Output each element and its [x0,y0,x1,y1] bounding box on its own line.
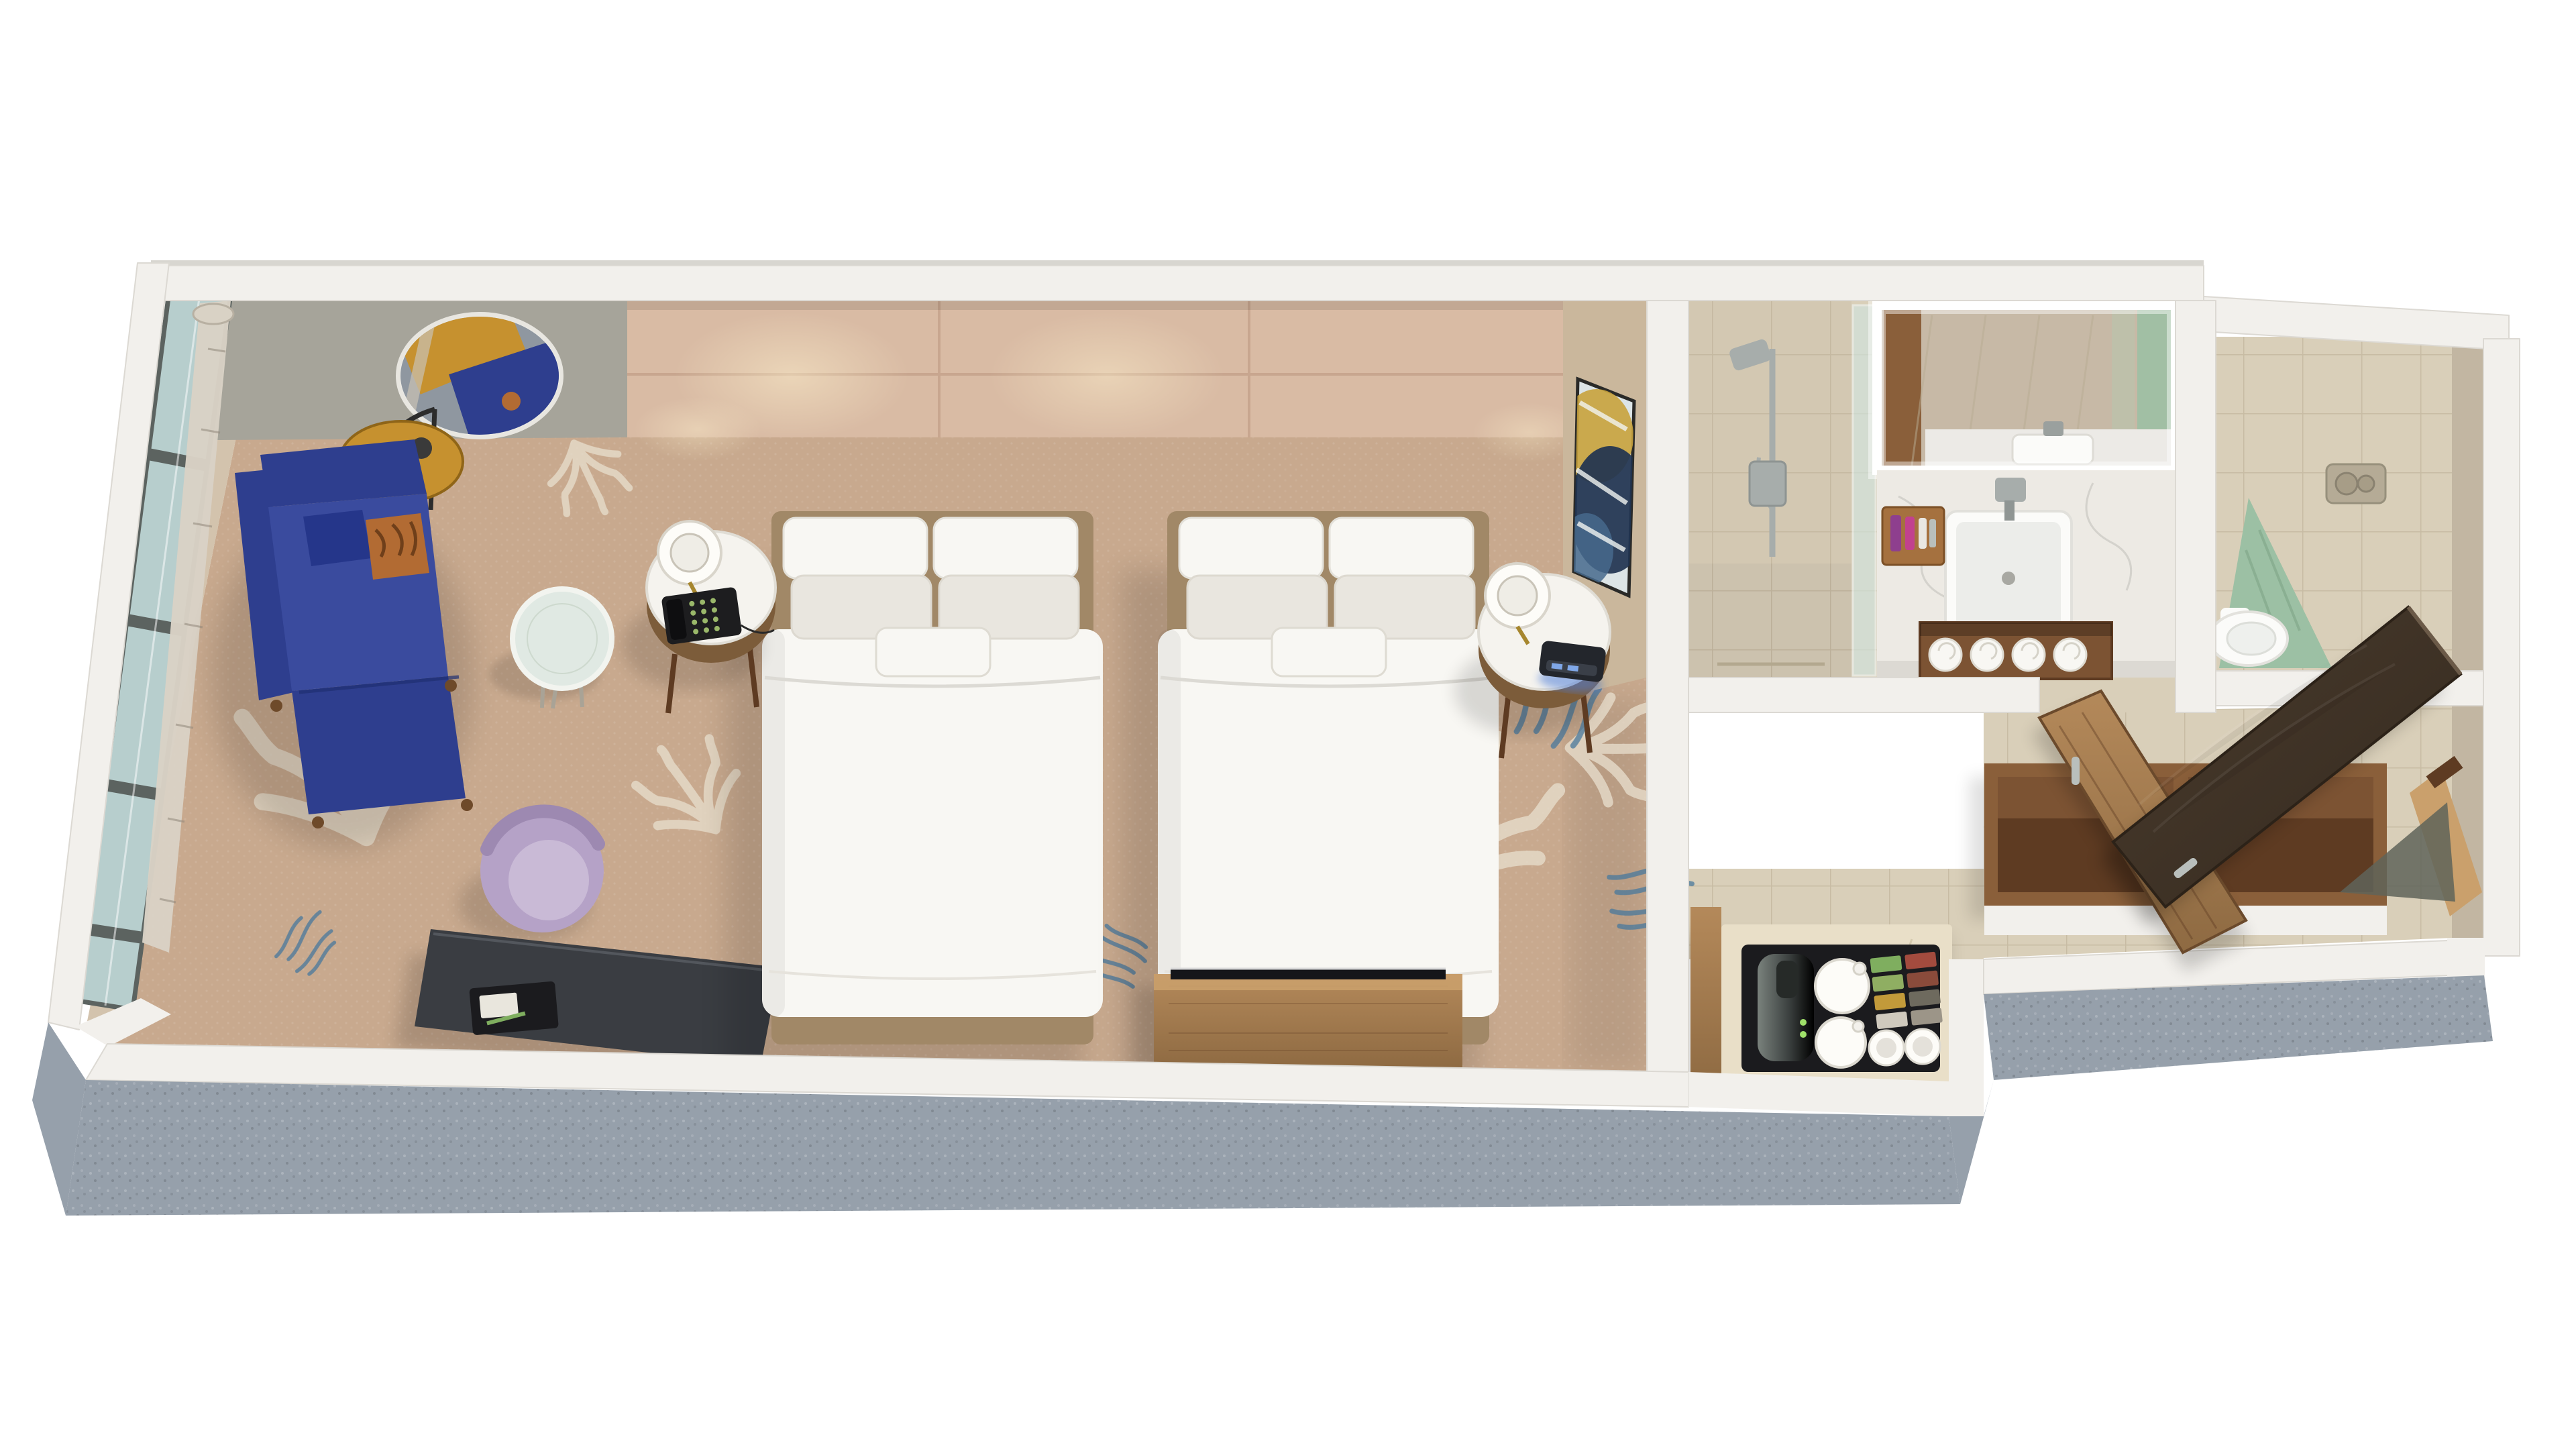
sofa-pillow-blue [303,510,372,566]
north-outer-edge [151,260,2204,266]
faucet-body [1995,478,2026,502]
desk-welcome-tray [469,981,559,1035]
bedroom-bath-divider-top [1647,301,1688,1106]
bathroom [1688,301,2176,679]
amenity-tray [1882,507,1944,565]
shower-mixer [1750,462,1786,506]
accent-pillow [366,513,429,580]
lumbar-pillow [1272,628,1386,676]
cabinet-side-panel [1690,907,1721,1089]
floor-plan-render [0,0,2576,1449]
tv-screen-edge [1171,969,1446,979]
wall-sconce-glow-2 [989,312,1224,439]
shower-area [1688,301,1851,678]
bath-toilet-divider-top [2176,301,2216,712]
chaise-cushion [292,676,466,814]
towel-shelf [1920,623,2112,679]
toiletry-bottle-pink [1905,517,1915,550]
faucet-spout [2004,500,2015,521]
sink-drain [2002,572,2015,585]
queen-bed-1 [726,511,1103,1080]
teapot-spout [1854,963,1866,975]
coffee-station [1676,907,1952,1097]
pillow [1330,518,1473,578]
bath-south-wall-top [1688,678,2039,712]
tub-chair-seat [508,840,589,920]
north-wall-top [151,266,2204,301]
lumbar-pillow [876,628,990,676]
toiletry-bottle-purple [1890,515,1901,551]
teapot-spout [1853,1021,1864,1032]
wall-top-shadow [627,301,1563,310]
pillow [784,518,927,578]
flush-plate [2326,464,2385,503]
east-wall-top [2483,339,2520,956]
kettle-handle [1776,961,1798,998]
toiletry-bottle-white [1919,518,1927,549]
pillow [934,518,1077,578]
door-handle [2072,757,2080,785]
lamp-glow-1 [634,397,761,462]
south-step-wall-top [1949,959,1984,1116]
pillow [1179,518,1323,578]
vanity-mirror [1877,305,2176,470]
toiletry-bottle-silver [1929,519,1936,547]
render-stage [0,0,2576,1449]
kettle [1758,954,1814,1061]
